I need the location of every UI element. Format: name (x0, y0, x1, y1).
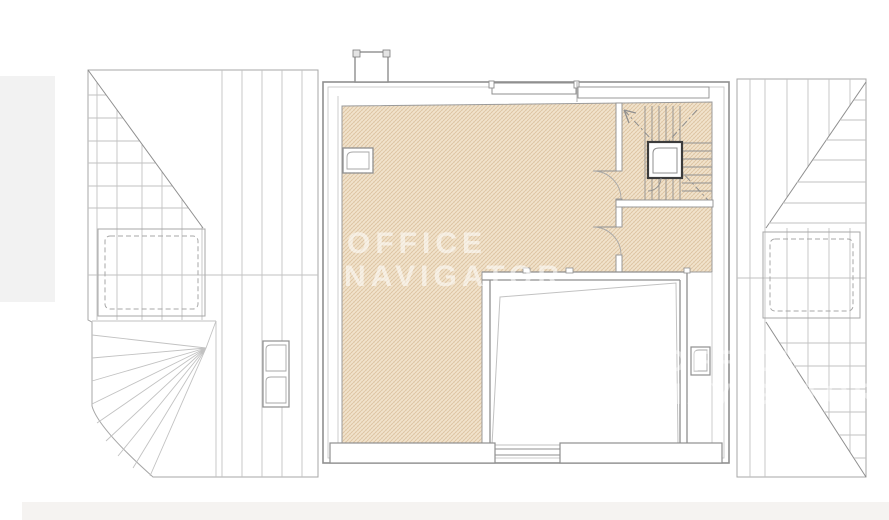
stair-wall-bottom (616, 200, 713, 207)
watermark-secondary-line2: NAVIGATOR (660, 378, 880, 411)
watermark-secondary: OFFICE NAVIGATOR (660, 345, 880, 411)
top-wall-windows (489, 81, 709, 102)
terrace-wall-tick-2 (566, 268, 573, 273)
left-roof-vertical-lines-full (222, 70, 302, 477)
left-roof-window-frame (263, 341, 289, 407)
terrace-void (482, 268, 690, 445)
left-margin-block (0, 76, 55, 302)
stair-wall-left-lower (616, 255, 622, 272)
left-roof-hip-horizontal-lines (88, 95, 188, 208)
chimney-cap-right (383, 50, 390, 57)
terrace-inner-outline (492, 283, 678, 445)
right-roof-hatch-dashed-outline (770, 239, 853, 311)
skylight-window (343, 148, 373, 173)
chimney (353, 50, 390, 82)
left-roof-outline (88, 70, 318, 477)
bottom-wall-right-segment (560, 443, 722, 463)
top-window-1 (492, 83, 576, 94)
watermark-secondary-line1: OFFICE (663, 345, 803, 378)
floor-plan-canvas: OFFICE NAVIGATOR OFFICE NAVIGATOR (0, 0, 889, 520)
chimney-cap-left (353, 50, 360, 57)
right-roof (737, 79, 866, 477)
terrace-void-walls (482, 272, 688, 445)
left-roof-fan-lines (92, 321, 216, 476)
right-roof-hatch-opening (763, 232, 860, 318)
left-roof-hatch-opening (98, 229, 205, 316)
bottom-wall (330, 443, 722, 463)
terrace-wall-tick-3 (684, 268, 690, 273)
stair-wall-left-upper (616, 103, 622, 171)
right-roof-hip-diagonal-top (766, 82, 866, 228)
watermark-line2: NAVIGATOR (344, 260, 564, 293)
top-window-2 (578, 87, 709, 98)
bottom-wall-left-segment (330, 443, 495, 463)
floor-plan-page: OFFICE NAVIGATOR OFFICE NAVIGATOR (0, 0, 889, 520)
right-roof-hip-horizontals-top (769, 100, 866, 223)
left-roof-fan-boundary (92, 321, 216, 477)
left-roof-hip-diagonal (88, 70, 203, 228)
bottom-margin-band (22, 502, 889, 520)
left-roof-hatch-dashed-outline (105, 236, 198, 309)
watermark-line1: OFFICE (347, 227, 487, 260)
bottom-wall-window (495, 449, 560, 455)
left-roof-window (263, 341, 289, 407)
top-window-1-jamb-left (489, 81, 494, 88)
left-roof (88, 70, 318, 477)
